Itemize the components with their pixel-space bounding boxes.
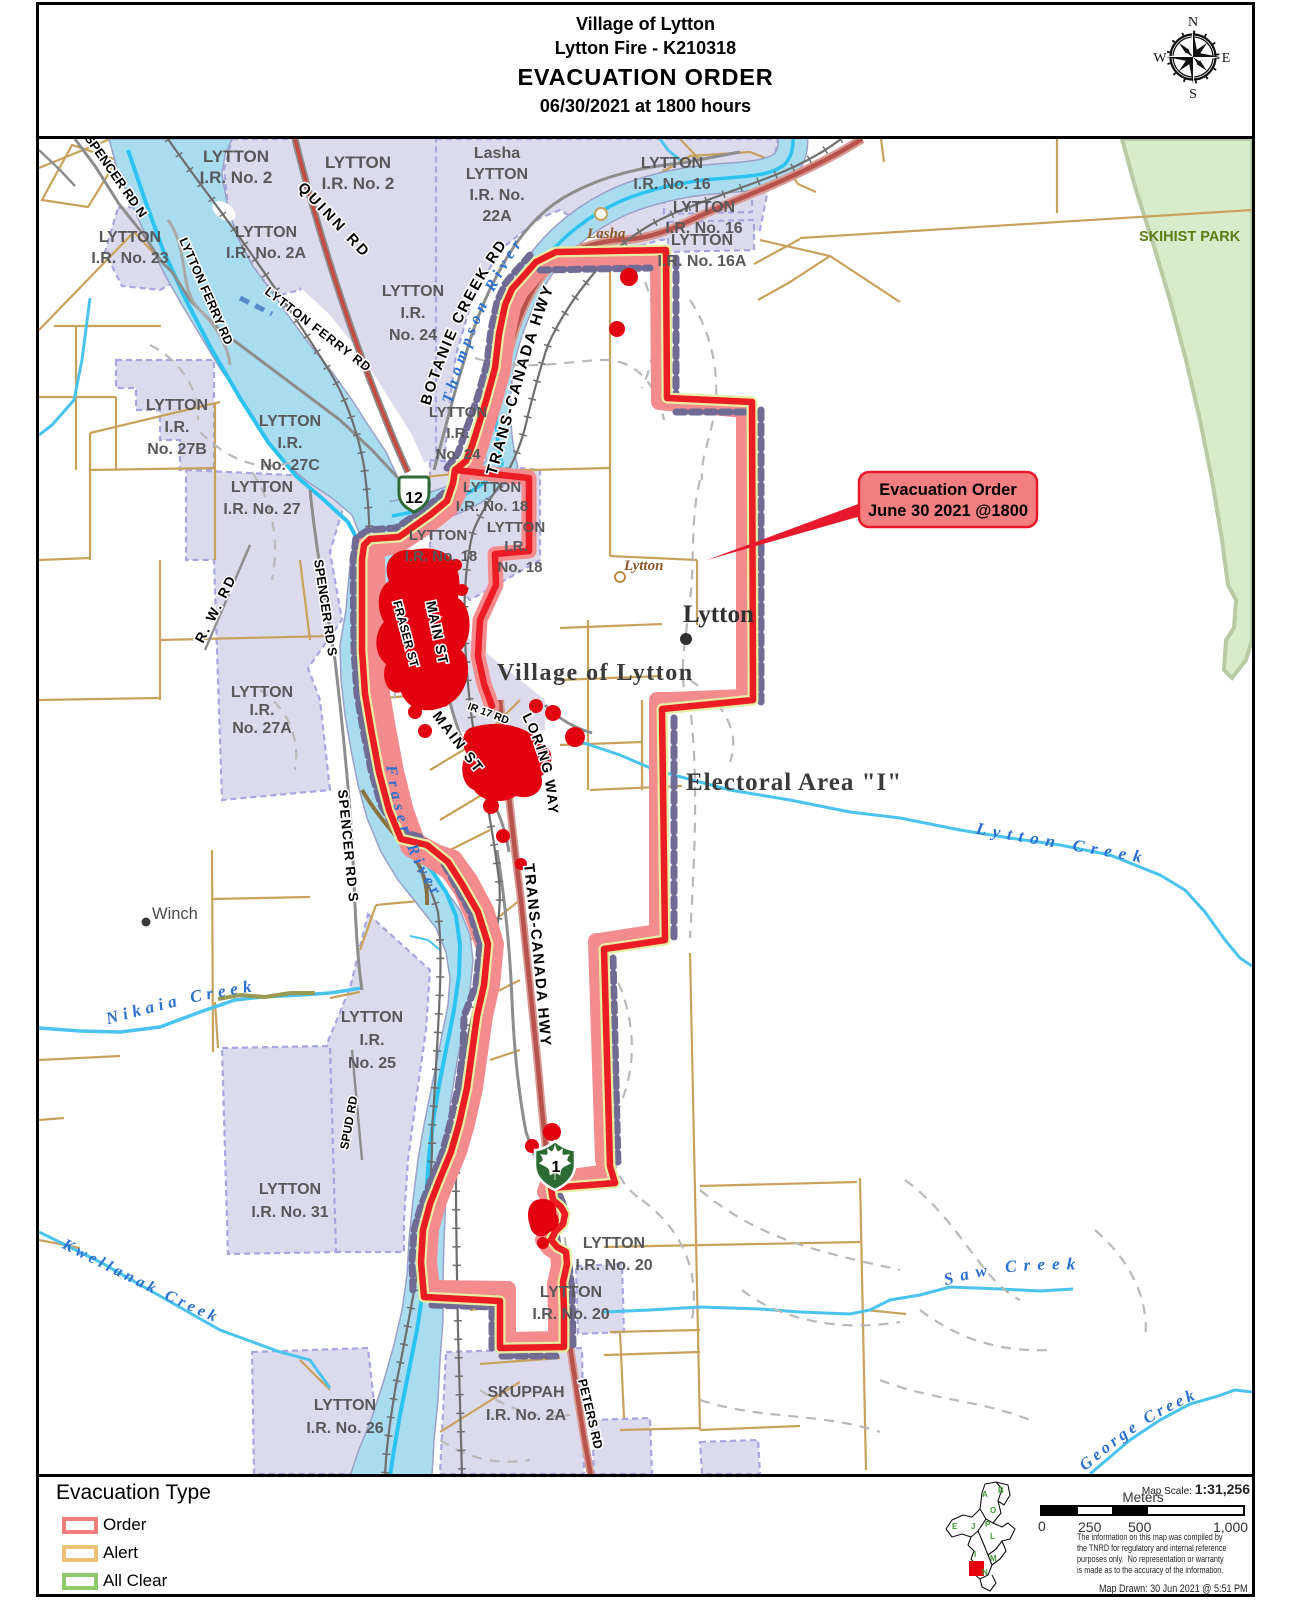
svg-text:June 30 2021 @1800: June 30 2021 @1800 [868, 502, 1028, 520]
svg-text:O: O [990, 1506, 996, 1515]
svg-text:Lytton: Lytton [623, 558, 663, 574]
svg-text:M: M [990, 1554, 997, 1563]
svg-text:J: J [971, 1522, 975, 1531]
svg-text:B: B [998, 1486, 1004, 1495]
svg-text:Village of Lytton: Village of Lytton [497, 660, 694, 686]
svg-text:E: E [1222, 51, 1231, 66]
svg-text:N: N [1188, 15, 1198, 30]
svg-text:W: W [1153, 51, 1167, 66]
svg-text:P: P [985, 1520, 991, 1529]
svg-text:S: S [1189, 87, 1197, 102]
svg-text:Lasha: Lasha [586, 226, 626, 242]
svg-text:Electoral Area "I": Electoral Area "I" [686, 769, 902, 796]
svg-text:1: 1 [552, 1159, 561, 1176]
svg-text:N: N [982, 1568, 988, 1577]
svg-text:E: E [952, 1522, 958, 1531]
svg-text:A: A [982, 1490, 988, 1499]
svg-text:Evacuation Order: Evacuation Order [879, 481, 1017, 499]
svg-text:L: L [990, 1532, 995, 1541]
svg-text:I: I [974, 1550, 976, 1559]
svg-text:SKIHIST PARK: SKIHIST PARK [1139, 229, 1241, 245]
svg-text:Winch: Winch [152, 905, 198, 923]
svg-text:Lytton: Lytton [683, 601, 754, 628]
svg-text:12: 12 [405, 490, 423, 507]
